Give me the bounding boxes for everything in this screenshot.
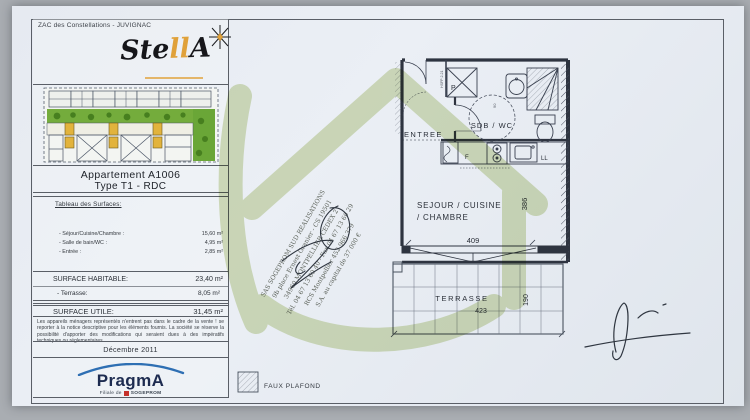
pragma-tagline-prefix: Filiale de (100, 391, 122, 396)
surface-utile-value: 31,45 m² (193, 307, 223, 316)
surface-utile-label: SURFACE UTILE: (53, 307, 114, 316)
surface-item-value: 4,95 m² (205, 240, 223, 246)
date-box: Décembre 2011 (33, 341, 228, 358)
surface-item-value: 2,85 m² (205, 249, 223, 255)
terrasse-label: - Terrasse: (57, 290, 88, 297)
surface-item-label: - Entrée : (59, 249, 81, 255)
star-icon (207, 23, 233, 51)
title-block: ZAC des Constellations - JUVIGNAC StellA (33, 19, 229, 398)
plan-date: Décembre 2011 (103, 345, 158, 354)
surface-item-label: - Salle de bain/WC : (59, 240, 107, 246)
apartment-title: Appartement A1006 (33, 169, 228, 181)
surface-habitable-label: SURFACE HABITABLE: (53, 276, 128, 283)
surface-habitable-row: SURFACE HABITABLE: 23,40 m² (33, 272, 228, 287)
site-plan-box (33, 85, 228, 166)
surface-item-value: 15,60 m² (202, 231, 223, 237)
pragma-subtitle: Filiale de SOGEPROM (100, 391, 162, 396)
project-name: ZAC des Constellations - JUVIGNAC (38, 22, 151, 29)
developer-logo-box: PragmA Filiale de SOGEPROM (33, 358, 228, 398)
surfaces-table-box: Tableau des Surfaces: - Séjour/Cuisine/C… (33, 197, 228, 272)
stella-logo-mid: ll (169, 33, 191, 65)
terrasse-value: 8,05 m² (198, 290, 220, 297)
pragma-logo-text: PragmA (97, 373, 165, 388)
stella-tagline-bar (145, 77, 203, 79)
apartment-title-box: Appartement A1006 Type T1 - RDC (33, 166, 228, 193)
surfaces-heading: Tableau des Surfaces: (55, 201, 122, 208)
terrasse-row: - Terrasse: 8,05 m² (33, 287, 228, 301)
logo-box: ZAC des Constellations - JUVIGNAC StellA (33, 19, 228, 85)
surface-habitable-value: 23,40 m² (195, 276, 223, 283)
surface-utile-row: SURFACE UTILE: 31,45 m² (33, 303, 228, 317)
apartment-subtitle: Type T1 - RDC (33, 181, 228, 192)
pragma-tagline-brand: SOGEPROM (131, 391, 162, 396)
photographed-floor-plan-sheet: { "header": { "project": "ZAC des Conste… (0, 0, 750, 420)
stella-logo-start: Ste (120, 34, 170, 67)
surface-item-label: - Séjour/Cuisine/Chambre : (59, 231, 124, 237)
site-plan-thumbnail (43, 87, 219, 163)
sogeprom-logo-icon (124, 391, 129, 396)
